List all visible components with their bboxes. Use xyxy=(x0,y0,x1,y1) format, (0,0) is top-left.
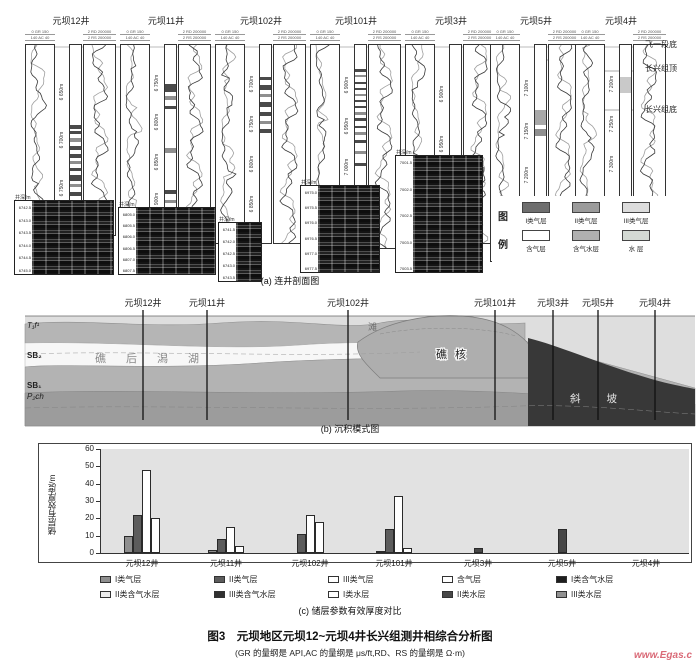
model-well-label-3: 元坝102井 xyxy=(327,297,369,308)
figure-title: 图3 元坝地区元坝12~元坝4井长兴组测井相综合分析图 xyxy=(0,628,700,644)
chart-legend-label: II类水层 xyxy=(457,589,485,600)
fluid-band xyxy=(355,82,366,85)
chart-legend-row-2: II类含气水层III类含气水层I类水层II类水层III类水层 xyxy=(100,587,680,601)
fmi-image xyxy=(318,186,379,272)
depth-label: 6 800m xyxy=(154,103,160,141)
fmi-depth-label: 6741.5 xyxy=(219,227,235,232)
panel-c-caption: (c) 储层参数有效厚度对比 xyxy=(200,604,500,617)
rs-scale-line: 2 RS 200000 xyxy=(178,35,211,41)
bar-含气层-元坝101井 xyxy=(403,548,412,553)
bar-含气层-元坝12井 xyxy=(151,518,160,553)
category-label: 元坝102井 xyxy=(265,558,355,569)
depth-label: 7 000m xyxy=(344,148,350,186)
fmi-depth-label: 6977.0 xyxy=(301,251,317,256)
ac-scale-line: 140 AC 40 xyxy=(575,35,605,41)
chart-legend-entry: II类水层 xyxy=(442,587,556,601)
strat-label-sb2: SB₂ xyxy=(27,351,42,360)
strat-label-t1f: T₁f¹ xyxy=(27,321,40,330)
track1-header: 0 GR 150140 AC 40 xyxy=(490,29,520,41)
model-well-label-6: 元坝5井 xyxy=(582,297,614,308)
track2-header: 2 RD 2000002 RS 200000 xyxy=(178,29,211,41)
y-tick-label: 0 xyxy=(72,548,94,557)
category-label: 元坝4井 xyxy=(601,558,691,569)
chart-legend-entry: I类含气水层 xyxy=(556,572,670,586)
track1-header: 0 GR 150140 AC 40 xyxy=(25,29,55,41)
category-label: 元坝12井 xyxy=(97,558,187,569)
model-well-label-7: 元坝4井 xyxy=(639,297,671,308)
rs-scale-line: 2 RS 200000 xyxy=(368,35,401,41)
chart-legend-entry: III类水层 xyxy=(556,587,670,601)
gr-curve xyxy=(216,45,244,243)
bar-含气层-元坝11井 xyxy=(235,546,244,553)
horizon-label-changxing-top: 长兴组顶 xyxy=(645,63,699,74)
bar-II类水层-元坝3井 xyxy=(474,548,483,553)
chart-legend-entry: II类气层 xyxy=(214,572,328,586)
panel-c-bar-chart: 储层有效厚度/m 0102030405060 元坝12井元坝11井元坝102井元… xyxy=(0,440,700,620)
facies-label-slope: 斜坡 xyxy=(570,392,643,405)
chart-legend-entry: I类气层 xyxy=(100,572,214,586)
fmi-depth-label: 6743.5 xyxy=(219,275,235,280)
fmi-depth-label: 6976.5 xyxy=(301,236,317,241)
fmi-depth-label: 6745.0 xyxy=(15,268,31,273)
fmi-insert-5: 井深/m7001.57002.07002.57003.07003.5 xyxy=(395,155,483,273)
y-tick-mark xyxy=(96,466,100,467)
fluid-band xyxy=(165,190,176,195)
model-well-label-2: 元坝11井 xyxy=(189,297,225,308)
fluid-band xyxy=(70,161,81,164)
fmi-depth-label: 7002.5 xyxy=(396,213,412,218)
fmi-depth-label: 6743.0 xyxy=(219,263,235,268)
depth-label: 6 700m xyxy=(249,65,255,103)
fluid-band xyxy=(355,163,366,167)
ac-scale-line: 140 AC 40 xyxy=(405,35,435,41)
watermark-text: www.Egas.c xyxy=(634,650,692,661)
bar-III类气层-元坝102井 xyxy=(306,515,315,553)
fmi-depth-label: 6742.5 xyxy=(15,205,31,210)
chart-legend-entry: I类水层 xyxy=(328,587,442,601)
bar-I类气层-元坝101井 xyxy=(376,551,385,553)
fluid-band xyxy=(355,132,366,135)
fmi-depth-label: 6742.0 xyxy=(219,239,235,244)
legend-label: I类气层 xyxy=(510,215,562,225)
fmi-image xyxy=(413,156,482,272)
y-tick-label: 40 xyxy=(72,479,94,488)
fluid-band xyxy=(260,102,271,107)
fluid-band xyxy=(70,146,81,151)
depth-label: 7 200m xyxy=(524,156,530,194)
fmi-depth-label: 6807.0 xyxy=(119,257,135,262)
facies-label-reef-core: 礁核 xyxy=(436,347,474,361)
bar-III类气层-元坝12井 xyxy=(142,470,151,553)
model-well-label-5: 元坝3井 xyxy=(537,297,569,308)
fmi-depth-label: 6807.5 xyxy=(119,268,135,273)
panel-a-caption: (a) 连井剖面图 xyxy=(170,274,410,287)
fmi-depth-label: 6976.0 xyxy=(301,220,317,225)
strat-label-p2ch: P₂ch xyxy=(27,392,44,401)
bar-III类气层-元坝11井 xyxy=(226,527,235,553)
figure-subtitle: (GR 的量纲是 API,AC 的量纲是 μs/ft,RD、RS 的量纲是 Ω·… xyxy=(0,647,700,659)
fluid-band xyxy=(355,126,366,128)
fmi-insert-2: 井深/m6805.06805.56806.06806.56807.06807.5 xyxy=(118,207,216,275)
chart-legend-swatch xyxy=(556,591,567,598)
depth-label: 7 150m xyxy=(524,112,530,150)
ac-scale-line: 140 AC 40 xyxy=(120,35,150,41)
fluid-band xyxy=(70,131,81,133)
track1-header: 0 GR 150140 AC 40 xyxy=(310,29,340,41)
chart-legend-swatch xyxy=(100,591,111,598)
y-tick-label: 10 xyxy=(72,531,94,540)
fluid-band xyxy=(535,129,546,136)
bar-II类水层-元坝5井 xyxy=(558,529,567,553)
panel-a-well-correlation: 元坝12井0 GR 150140 AC 402 RD 2000002 RS 20… xyxy=(0,0,700,296)
y-tick-label: 60 xyxy=(72,444,94,453)
chart-legend-label: III类气层 xyxy=(343,574,374,585)
legend-title-char-2: 例 xyxy=(498,236,508,251)
chart-legend-label: 含气层 xyxy=(457,574,481,585)
rs-scale-line: 2 RS 200000 xyxy=(83,35,116,41)
fluid-band xyxy=(355,112,366,115)
fmi-depth-unit-label: 井深/m xyxy=(396,149,412,156)
fmi-depth-label: 7002.0 xyxy=(396,187,412,192)
fluid-band xyxy=(70,125,81,129)
fmi-depth-unit-label: 井深/m xyxy=(119,201,135,208)
ac-scale-line: 140 AC 40 xyxy=(215,35,245,41)
legend-swatch xyxy=(622,230,650,241)
horizon-label-changxing-bottom: 长兴组底 xyxy=(645,104,699,115)
fluid-band xyxy=(260,112,271,116)
track1-header: 0 GR 150140 AC 40 xyxy=(120,29,150,41)
fluid-band xyxy=(620,77,631,93)
fluid-band xyxy=(260,94,271,97)
fmi-depth-label: 7003.5 xyxy=(396,266,412,271)
depth-label: 7 100m xyxy=(524,69,530,107)
lithology-column xyxy=(259,44,272,244)
legend-swatch xyxy=(572,202,600,213)
chart-legend-swatch xyxy=(556,576,567,583)
legend-label: II类气层 xyxy=(560,215,612,225)
legend-swatch xyxy=(572,230,600,241)
facies-label-lagoon: 礁后潟湖 xyxy=(95,351,219,365)
legend-swatch xyxy=(522,202,550,213)
fmi-insert-3: 井深/m6741.56742.06742.56743.06743.5 xyxy=(218,222,262,282)
depth-label: 6 650m xyxy=(59,73,65,111)
depth-label: 6 900m xyxy=(439,75,445,113)
fmi-image xyxy=(136,208,215,274)
fmi-depth-label: 6975.5 xyxy=(301,205,317,210)
depth-label: 6 850m xyxy=(154,143,160,181)
figure-page: 元坝12井0 GR 150140 AC 402 RD 2000002 RS 20… xyxy=(0,0,700,672)
fmi-depth-label: 6977.5 xyxy=(301,266,317,271)
chart-legend-entry: III类气层 xyxy=(328,572,442,586)
fluid-band xyxy=(260,77,271,81)
depth-labels: 6 700m6 750m6 800m6 850m xyxy=(246,44,258,244)
fluid-band xyxy=(355,75,366,77)
legend-label: 含气层 xyxy=(510,243,562,253)
fluid-band xyxy=(70,184,81,187)
track1-header: 0 GR 150140 AC 40 xyxy=(215,29,245,41)
fluid-band xyxy=(355,140,366,143)
rs-scale-line: 2 RS 200000 xyxy=(273,35,306,41)
depth-label: 7 300m xyxy=(609,145,615,183)
depth-label: 6 800m xyxy=(249,145,255,183)
legend-swatch xyxy=(522,230,550,241)
fluid-band xyxy=(355,118,366,121)
ac-scale-line: 140 AC 40 xyxy=(310,35,340,41)
chart-legend-swatch xyxy=(100,576,111,583)
fmi-depth-label: 6806.5 xyxy=(119,246,135,251)
track2-header: 2 RD 2000002 RS 200000 xyxy=(83,29,116,41)
track2-header: 2 RD 2000002 RS 200000 xyxy=(273,29,306,41)
fmi-depth-label: 7001.5 xyxy=(396,160,412,165)
y-tick-mark xyxy=(96,484,100,485)
legend-label: 含气水层 xyxy=(560,243,612,253)
chart-legend-label: I类气层 xyxy=(115,574,141,585)
fmi-insert-4: 井深/m6975.06975.56976.06976.56977.06977.5 xyxy=(300,185,380,273)
y-tick-label: 50 xyxy=(72,461,94,470)
fmi-image xyxy=(32,201,113,274)
track1-header: 0 GR 150140 AC 40 xyxy=(575,29,605,41)
chart-legend-swatch xyxy=(214,576,225,583)
panel-b-caption: (b) 沉积模式图 xyxy=(230,422,470,435)
chart-legend-swatch xyxy=(442,576,453,583)
fluid-band xyxy=(355,88,366,90)
chart-legend-label: I类水层 xyxy=(343,589,369,600)
depth-label: 6 750m xyxy=(154,64,160,102)
fluid-band xyxy=(355,94,366,97)
fmi-depth-unit-label: 井深/m xyxy=(301,179,317,186)
bar-I类气层-元坝11井 xyxy=(208,550,217,553)
legend-swatch xyxy=(622,202,650,213)
chart-legend-swatch xyxy=(214,591,225,598)
fluid-band xyxy=(355,69,366,72)
model-well-label-4: 元坝101井 xyxy=(474,297,516,308)
chart-legend-entry: 含气层 xyxy=(442,572,556,586)
fmi-depth-unit-label: 井深/m xyxy=(219,216,235,223)
well-name: 元坝11井 xyxy=(112,14,220,27)
fmi-depth-unit-label: 井深/m xyxy=(15,194,31,201)
depth-label: 6 700m xyxy=(59,121,65,159)
chart-legend-swatch xyxy=(442,591,453,598)
fluid-band xyxy=(165,200,176,203)
depth-label: 6 950m xyxy=(344,107,350,145)
fluid-band xyxy=(165,148,176,153)
fmi-depth-label: 6805.0 xyxy=(119,212,135,217)
category-label: 元坝101井 xyxy=(349,558,439,569)
fluid-band xyxy=(535,110,546,125)
chart-legend-row-1: I类气层II类气层III类气层含气层I类含气水层 xyxy=(100,572,680,586)
fluid-band xyxy=(70,154,81,157)
fmi-image xyxy=(236,223,261,281)
y-tick-label: 20 xyxy=(72,513,94,522)
fluid-band xyxy=(165,84,176,92)
chart-legend-label: II类含气水层 xyxy=(115,589,159,600)
fluid-band xyxy=(70,168,81,172)
chart-legend-label: III类含气水层 xyxy=(229,589,276,600)
fmi-depth-label: 7003.0 xyxy=(396,240,412,245)
horizon-label-fei1-bottom: 飞一段底 xyxy=(645,39,699,50)
fluid-band xyxy=(260,129,271,133)
well-name: 元坝12井 xyxy=(17,14,125,27)
fluid-band xyxy=(355,106,366,108)
fmi-depth-label: 6806.0 xyxy=(119,234,135,239)
y-tick-mark xyxy=(96,536,100,537)
fluid-band xyxy=(165,96,176,99)
category-label: 元坝3井 xyxy=(433,558,523,569)
y-tick-label: 30 xyxy=(72,496,94,505)
ac-scale-line: 140 AC 40 xyxy=(25,35,55,41)
bar-含气层-元坝102井 xyxy=(315,522,324,553)
fluid-band xyxy=(165,106,176,109)
chart-legend-label: II类气层 xyxy=(229,574,257,585)
y-tick-mark xyxy=(96,449,100,450)
legend-title-char-1: 图 xyxy=(498,208,508,223)
well-name: 元坝4井 xyxy=(567,14,675,27)
chart-legend-label: III类水层 xyxy=(571,589,602,600)
depth-label: 7 250m xyxy=(609,105,615,143)
well-group-3: 元坝102井0 GR 150140 AC 402 RD 2000002 RS 2… xyxy=(215,14,307,244)
model-well-label-1: 元坝12井 xyxy=(124,297,161,308)
fluid-band xyxy=(70,192,81,196)
depth-label: 6 850m xyxy=(249,185,255,223)
fluid-band xyxy=(70,138,81,141)
fmi-depth-label: 6742.5 xyxy=(219,251,235,256)
fmi-depth-label: 6743.5 xyxy=(15,230,31,235)
y-tick-mark xyxy=(96,553,100,554)
legend-label: III类气层 xyxy=(610,215,662,225)
track2-header: 2 RD 2000002 RS 200000 xyxy=(368,29,401,41)
depth-label: 6 900m xyxy=(344,66,350,104)
fluid-band xyxy=(260,121,271,124)
chart-legend-entry: III类含气水层 xyxy=(214,587,328,601)
depth-label: 7 200m xyxy=(609,65,615,103)
fmi-depth-label: 6743.0 xyxy=(15,218,31,223)
bar-II类气层-元坝102井 xyxy=(297,534,306,553)
fluid-band xyxy=(260,85,271,90)
fmi-depth-label: 6975.0 xyxy=(301,190,317,195)
panel-b-sedimentary-model: 元坝12井元坝11井元坝102井元坝101井元坝3井元坝5井元坝4井T₁f¹SB… xyxy=(0,296,700,436)
panel-a-legend: 图 例 I类气层II类气层III类气层含气层含气水层水 层 xyxy=(492,196,698,268)
track1-header: 0 GR 150140 AC 40 xyxy=(405,29,435,41)
bar-II类气层-元坝12井 xyxy=(133,515,142,553)
chart-legend-swatch xyxy=(328,576,339,583)
bar-II类气层-元坝11井 xyxy=(217,539,226,553)
legend-label: 水 层 xyxy=(610,243,662,253)
fluid-band xyxy=(355,151,366,154)
chart-legend-label: I类含气水层 xyxy=(571,574,613,585)
bar-II类气层-元坝101井 xyxy=(385,529,394,553)
ac-scale-line: 140 AC 40 xyxy=(490,35,520,41)
fmi-depth-label: 6805.5 xyxy=(119,223,135,228)
fmi-depth-label: 6744.0 xyxy=(15,243,31,248)
category-label: 元坝5井 xyxy=(517,558,607,569)
y-tick-mark xyxy=(96,501,100,502)
sedimentary-model-svg: 元坝12井元坝11井元坝102井元坝101井元坝3井元坝5井元坝4井T₁f¹SB… xyxy=(0,296,700,436)
chart-legend-entry: II类含气水层 xyxy=(100,587,214,601)
depth-label: 6 750m xyxy=(249,105,255,143)
bar-III类气层-元坝101井 xyxy=(394,496,403,553)
fmi-depth-label: 6744.5 xyxy=(15,255,31,260)
well-name: 元坝102井 xyxy=(207,14,315,27)
gr-ac-track xyxy=(215,44,245,244)
strat-label-sb1: SB₁ xyxy=(27,381,42,390)
fmi-insert-1: 井深/m6742.56743.06743.56744.06744.56745.0 xyxy=(14,200,114,275)
fluid-band xyxy=(355,100,366,103)
bar-I类气层-元坝12井 xyxy=(124,536,133,553)
fluid-band xyxy=(70,175,81,180)
chart-legend-swatch xyxy=(328,591,339,598)
y-tick-mark xyxy=(96,518,100,519)
category-label: 元坝11井 xyxy=(181,558,271,569)
facies-label-shoal: 滩 xyxy=(368,321,377,332)
chart-y-axis-label: 储层有效厚度/m xyxy=(46,460,60,550)
well-name: 元坝101井 xyxy=(302,14,410,27)
